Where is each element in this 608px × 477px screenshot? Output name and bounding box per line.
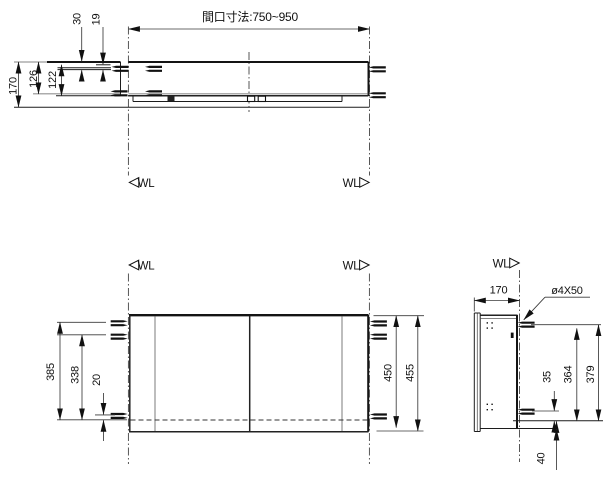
top-view: 間口寸法:750~950: [8, 10, 386, 190]
screw-dot-icon: [487, 327, 488, 328]
wl-triangle-right-icon: [360, 178, 370, 188]
dim-20-label: 20: [91, 374, 103, 386]
wl-triangle-right-icon: [510, 258, 520, 268]
fixing-clip-icon: [370, 334, 387, 340]
fixing-clip-icon: [370, 413, 387, 419]
dim-170-label: 170: [8, 77, 20, 95]
fixing-clip-icon: [145, 66, 162, 72]
fixing-clip-icon: [111, 334, 128, 340]
stopper-tab: [248, 96, 255, 101]
wl-label: WL: [138, 178, 156, 190]
leader-line: [524, 297, 545, 320]
dim-170-label: 170: [490, 285, 508, 297]
fixing-clip-icon: [145, 90, 162, 96]
dim-364-label: 364: [563, 366, 575, 384]
technical-drawing: 間口寸法:750~950: [0, 0, 608, 477]
fixing-clip-icon: [370, 320, 387, 326]
dim-30-label: 30: [72, 13, 84, 25]
screw-dot-icon: [491, 322, 492, 323]
screw-dot-icon: [491, 409, 492, 410]
screw-dot-icon: [491, 327, 492, 328]
wl-label: WL: [493, 259, 511, 271]
wl-label: WL: [343, 260, 361, 272]
dim-450-label: 450: [383, 364, 395, 382]
fixing-clip-icon: [111, 320, 128, 326]
fixing-clip-icon: [111, 413, 128, 419]
dim-126-label: 126: [28, 70, 40, 88]
opening-dimension-label: 間口寸法:750~950: [202, 10, 299, 24]
dim-379-label: 379: [585, 366, 597, 384]
dim-455-label: 455: [405, 364, 417, 382]
screw-dot-icon: [487, 404, 488, 405]
fixing-clip-icon: [369, 92, 386, 98]
fixing-clip-icon: [111, 90, 128, 96]
front-view: WL WL 385 338 20: [45, 260, 424, 464]
screw-dot-icon: [487, 322, 488, 323]
screw-dot-icon: [487, 409, 488, 410]
dim-122-label: 122: [47, 71, 59, 89]
stopper-tab: [258, 96, 265, 101]
dim-35-label: 35: [542, 371, 554, 383]
fixing-clip-icon: [369, 66, 386, 72]
screw-note-label: ø4X50: [551, 285, 582, 297]
dim-40-label: 40: [536, 453, 548, 465]
dim-385-label: 385: [45, 363, 57, 381]
wl-triangle-right-icon: [360, 260, 370, 270]
dim-19-label: 19: [91, 14, 103, 26]
wl-label: WL: [343, 178, 361, 190]
drawing-svg: 間口寸法:750~950: [0, 0, 608, 477]
dim-338-label: 338: [70, 366, 82, 384]
catch-block: [168, 96, 175, 101]
fixing-screw-icon: [518, 409, 535, 415]
wl-label: WL: [138, 260, 156, 272]
screw-dot-icon: [491, 404, 492, 405]
side-view: WL 170 ø4X50: [474, 258, 603, 470]
catch-block: [511, 333, 514, 338]
